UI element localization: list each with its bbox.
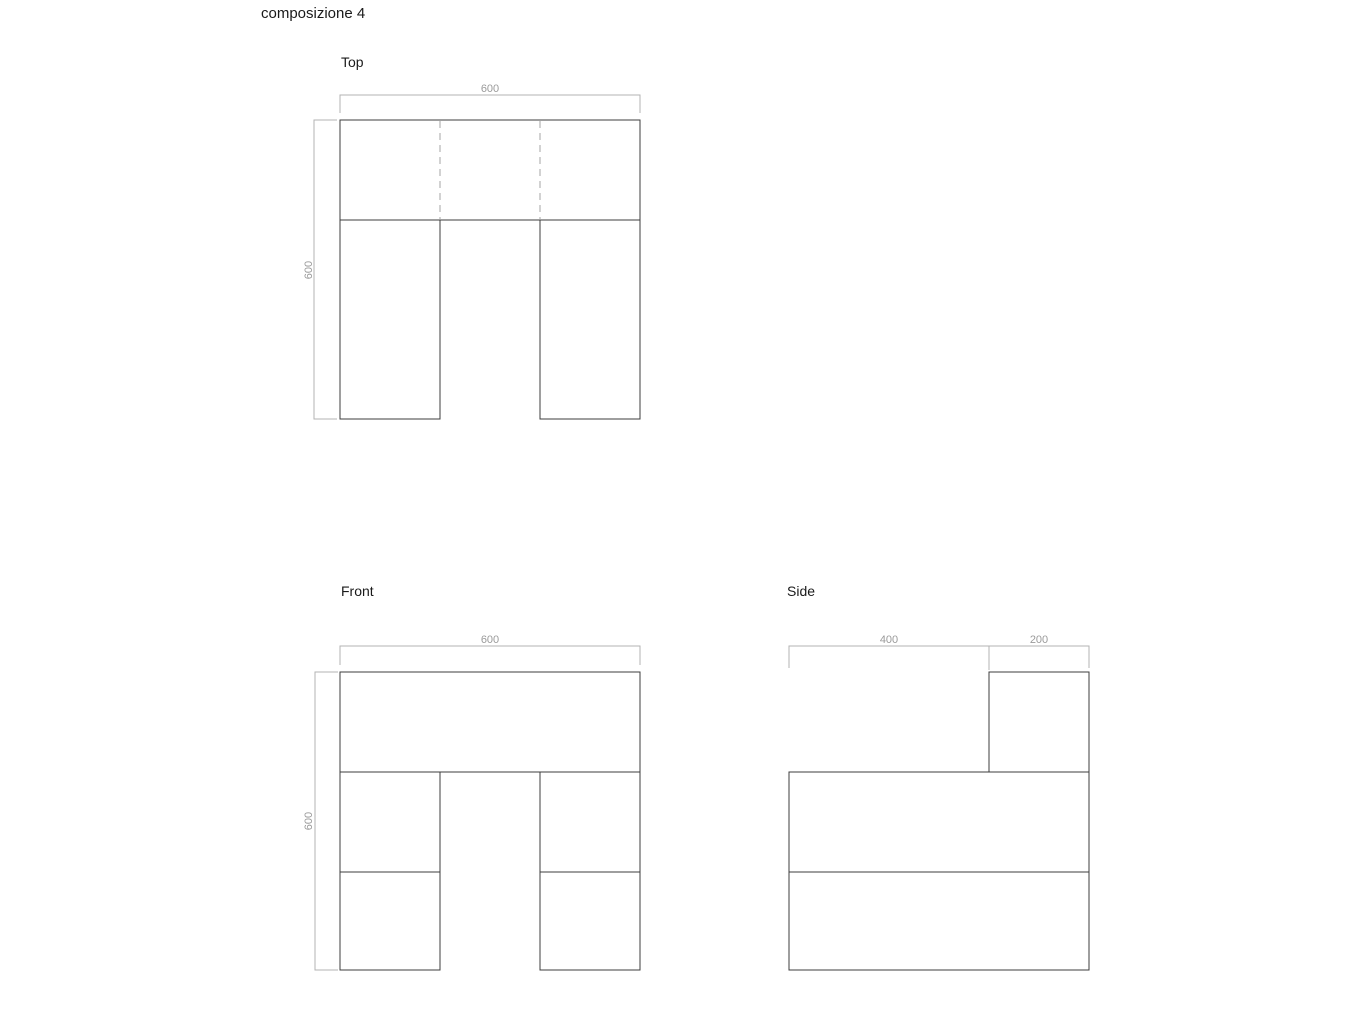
front-view-top-panel — [340, 672, 640, 772]
top-view-dimensions: 600 600 — [303, 83, 640, 419]
top-view-height-dimension-value: 600 — [303, 261, 315, 279]
technical-drawing: composizione 4 Top 600 600 Front — [0, 0, 1372, 1029]
front-view-shape — [340, 672, 640, 970]
front-view-right-leg — [540, 772, 640, 970]
side-view-label: Side — [787, 583, 815, 599]
front-view-label: Front — [341, 583, 374, 599]
top-view-shape — [340, 120, 640, 419]
side-view-upper-box — [989, 672, 1089, 772]
front-view-width-dimension-value: 600 — [481, 634, 499, 646]
side-view-right-dimension-value: 200 — [1030, 634, 1048, 646]
side-view-left-dimension-value: 400 — [880, 634, 898, 646]
front-view-width-dimension-line — [340, 646, 640, 665]
side-view: Side 400 200 — [787, 583, 1089, 970]
front-view: Front 600 600 — [303, 583, 640, 970]
side-view-shape — [789, 672, 1089, 970]
top-view-worktop-panel — [340, 120, 640, 220]
drawing-canvas: composizione 4 Top 600 600 Front — [0, 0, 1372, 1029]
side-view-bottom-band — [789, 872, 1089, 970]
side-view-middle-band — [789, 772, 1089, 872]
top-view: Top 600 600 — [303, 54, 640, 419]
front-view-dimensions: 600 600 — [303, 634, 640, 970]
top-view-left-side-panel — [340, 220, 440, 419]
top-view-height-dimension-line — [314, 120, 337, 419]
top-view-width-dimension-value: 600 — [481, 83, 499, 95]
side-view-dimension-line — [789, 646, 1089, 668]
front-view-height-dimension-value: 600 — [303, 812, 315, 830]
side-view-dimensions: 400 200 — [789, 634, 1089, 670]
drawing-title: composizione 4 — [261, 5, 365, 22]
front-view-height-dimension-line — [315, 672, 338, 970]
top-view-label: Top — [341, 54, 364, 70]
top-view-width-dimension-line — [340, 95, 640, 113]
front-view-left-leg — [340, 772, 440, 970]
top-view-right-side-panel — [540, 220, 640, 419]
